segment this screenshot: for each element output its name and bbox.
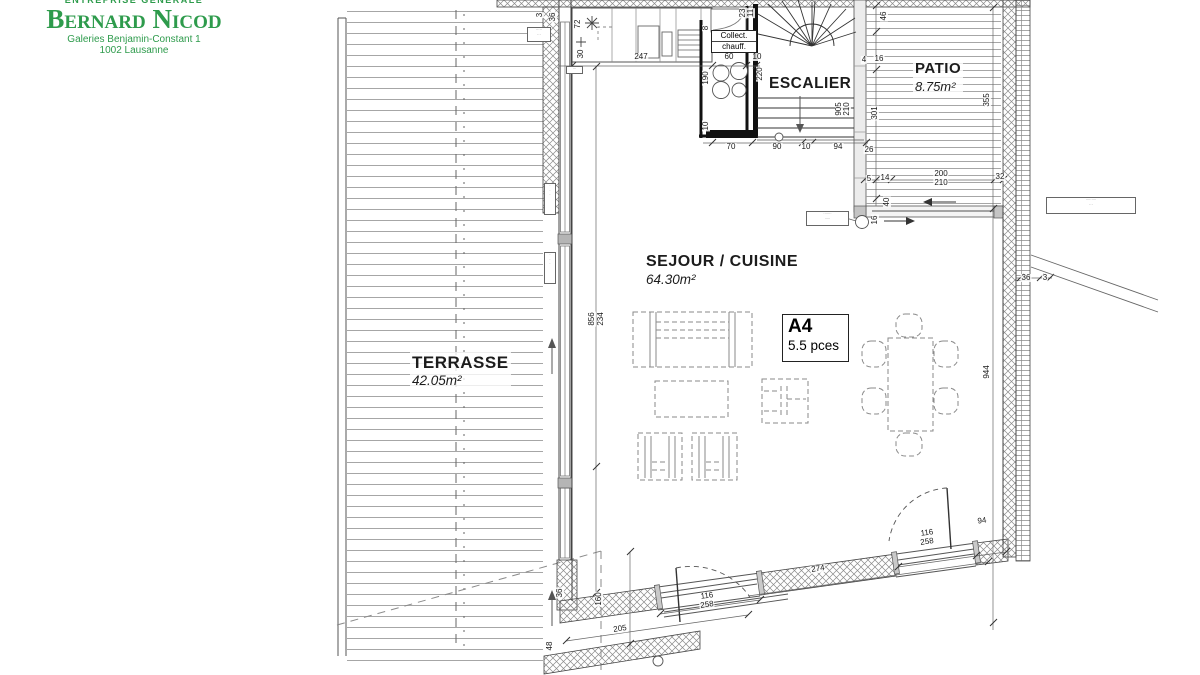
dimension-label: 94 [976, 516, 988, 525]
dimension-label: 40 [883, 197, 891, 208]
dimension-label: 200 [933, 170, 948, 178]
dimension-label: 210 [933, 179, 948, 187]
annotation-box: ··· [566, 66, 583, 74]
brand-address-line1: Galeries Benjamin-Constant 1 [28, 34, 240, 46]
dimension-label: 5 [866, 175, 872, 183]
dimension-label: 32 [995, 173, 1006, 181]
annotation-box: ··· [544, 252, 556, 284]
dimension-label: 94 [833, 143, 844, 151]
annotation-box: ··· [544, 183, 556, 215]
brand-name: Bernard Nicod [28, 5, 240, 33]
dimension-label: 234 [597, 311, 605, 326]
dimension-label: 944 [983, 364, 991, 379]
dimension-label: 16 [871, 215, 879, 226]
room-area: 64.30m² [646, 272, 798, 289]
collect-chauff-label: Collect. chauff. [711, 30, 757, 53]
dimension-label: 90 [772, 143, 783, 151]
dimension-label: 72 [574, 19, 582, 30]
floor-plan-drawing [0, 0, 1200, 675]
room-label-escalier: ESCALIER [767, 74, 853, 93]
brand-address-line2: 1002 Lausanne [28, 45, 240, 57]
dimension-label: 190 [702, 70, 710, 85]
dimension-label: 4 [861, 56, 867, 64]
dimension-label: 30 [577, 49, 585, 60]
annotation-box: ········ [527, 27, 551, 42]
dimension-label: 36 [549, 12, 557, 23]
dimension-label: 3 [1042, 274, 1048, 282]
dimension-label: 60 [724, 53, 735, 61]
dimension-label: 355 [983, 92, 991, 107]
unit-badge: A4 5.5 pces [782, 314, 849, 362]
room-label-patio: PATIO 8.75m² [913, 60, 963, 95]
annotation-box: ············ [806, 211, 849, 226]
room-name: SEJOUR / CUISINE [646, 252, 798, 272]
dimension-label: 11 [747, 8, 755, 18]
dimension-label: 10 [702, 121, 710, 132]
room-label-terrasse: TERRASSE 42.05m² [410, 352, 511, 390]
dimension-label: 160 [595, 591, 603, 606]
room-name: ESCALIER [769, 74, 851, 93]
dimension-label: 26 [864, 146, 875, 154]
dimension-label: 247 [633, 53, 648, 61]
dimension-label: 856 [588, 311, 596, 326]
room-name: PATIO [915, 60, 961, 79]
equip-line2: chauff. [712, 42, 756, 52]
dimension-label: 70 [726, 143, 737, 151]
floor-plan-page: ENTREPRISE GÉNÉRALE Bernard Nicod Galeri… [0, 0, 1200, 675]
dimension-label: 210 [843, 101, 851, 116]
dimension-label: 301 [871, 105, 879, 120]
dimension-label: 46 [880, 11, 888, 22]
unit-code: A4 [788, 316, 848, 338]
dimension-label: 14 [880, 174, 891, 182]
dimension-label: 48 [546, 641, 554, 652]
dimension-label: 3 [536, 12, 544, 18]
dimension-label: 10 [801, 143, 812, 151]
brand-logo: ENTREPRISE GÉNÉRALE Bernard Nicod Galeri… [28, 0, 240, 57]
room-area: 42.05m² [412, 373, 509, 390]
equip-line1: Collect. [712, 31, 756, 42]
dimension-label: 8 [702, 25, 710, 31]
room-label-sejour: SEJOUR / CUISINE 64.30m² [646, 252, 798, 289]
dimension-label: 16 [874, 55, 885, 63]
dimension-label: 220 [756, 66, 764, 81]
room-name: TERRASSE [412, 352, 509, 373]
dimension-label: 36 [1021, 274, 1032, 282]
dimension-label: 10 [752, 53, 763, 61]
annotation-box: ············ [1046, 197, 1136, 214]
dimension-label: 36 [556, 588, 564, 599]
room-area: 8.75m² [915, 79, 961, 95]
unit-room-count: 5.5 pces [788, 338, 848, 354]
